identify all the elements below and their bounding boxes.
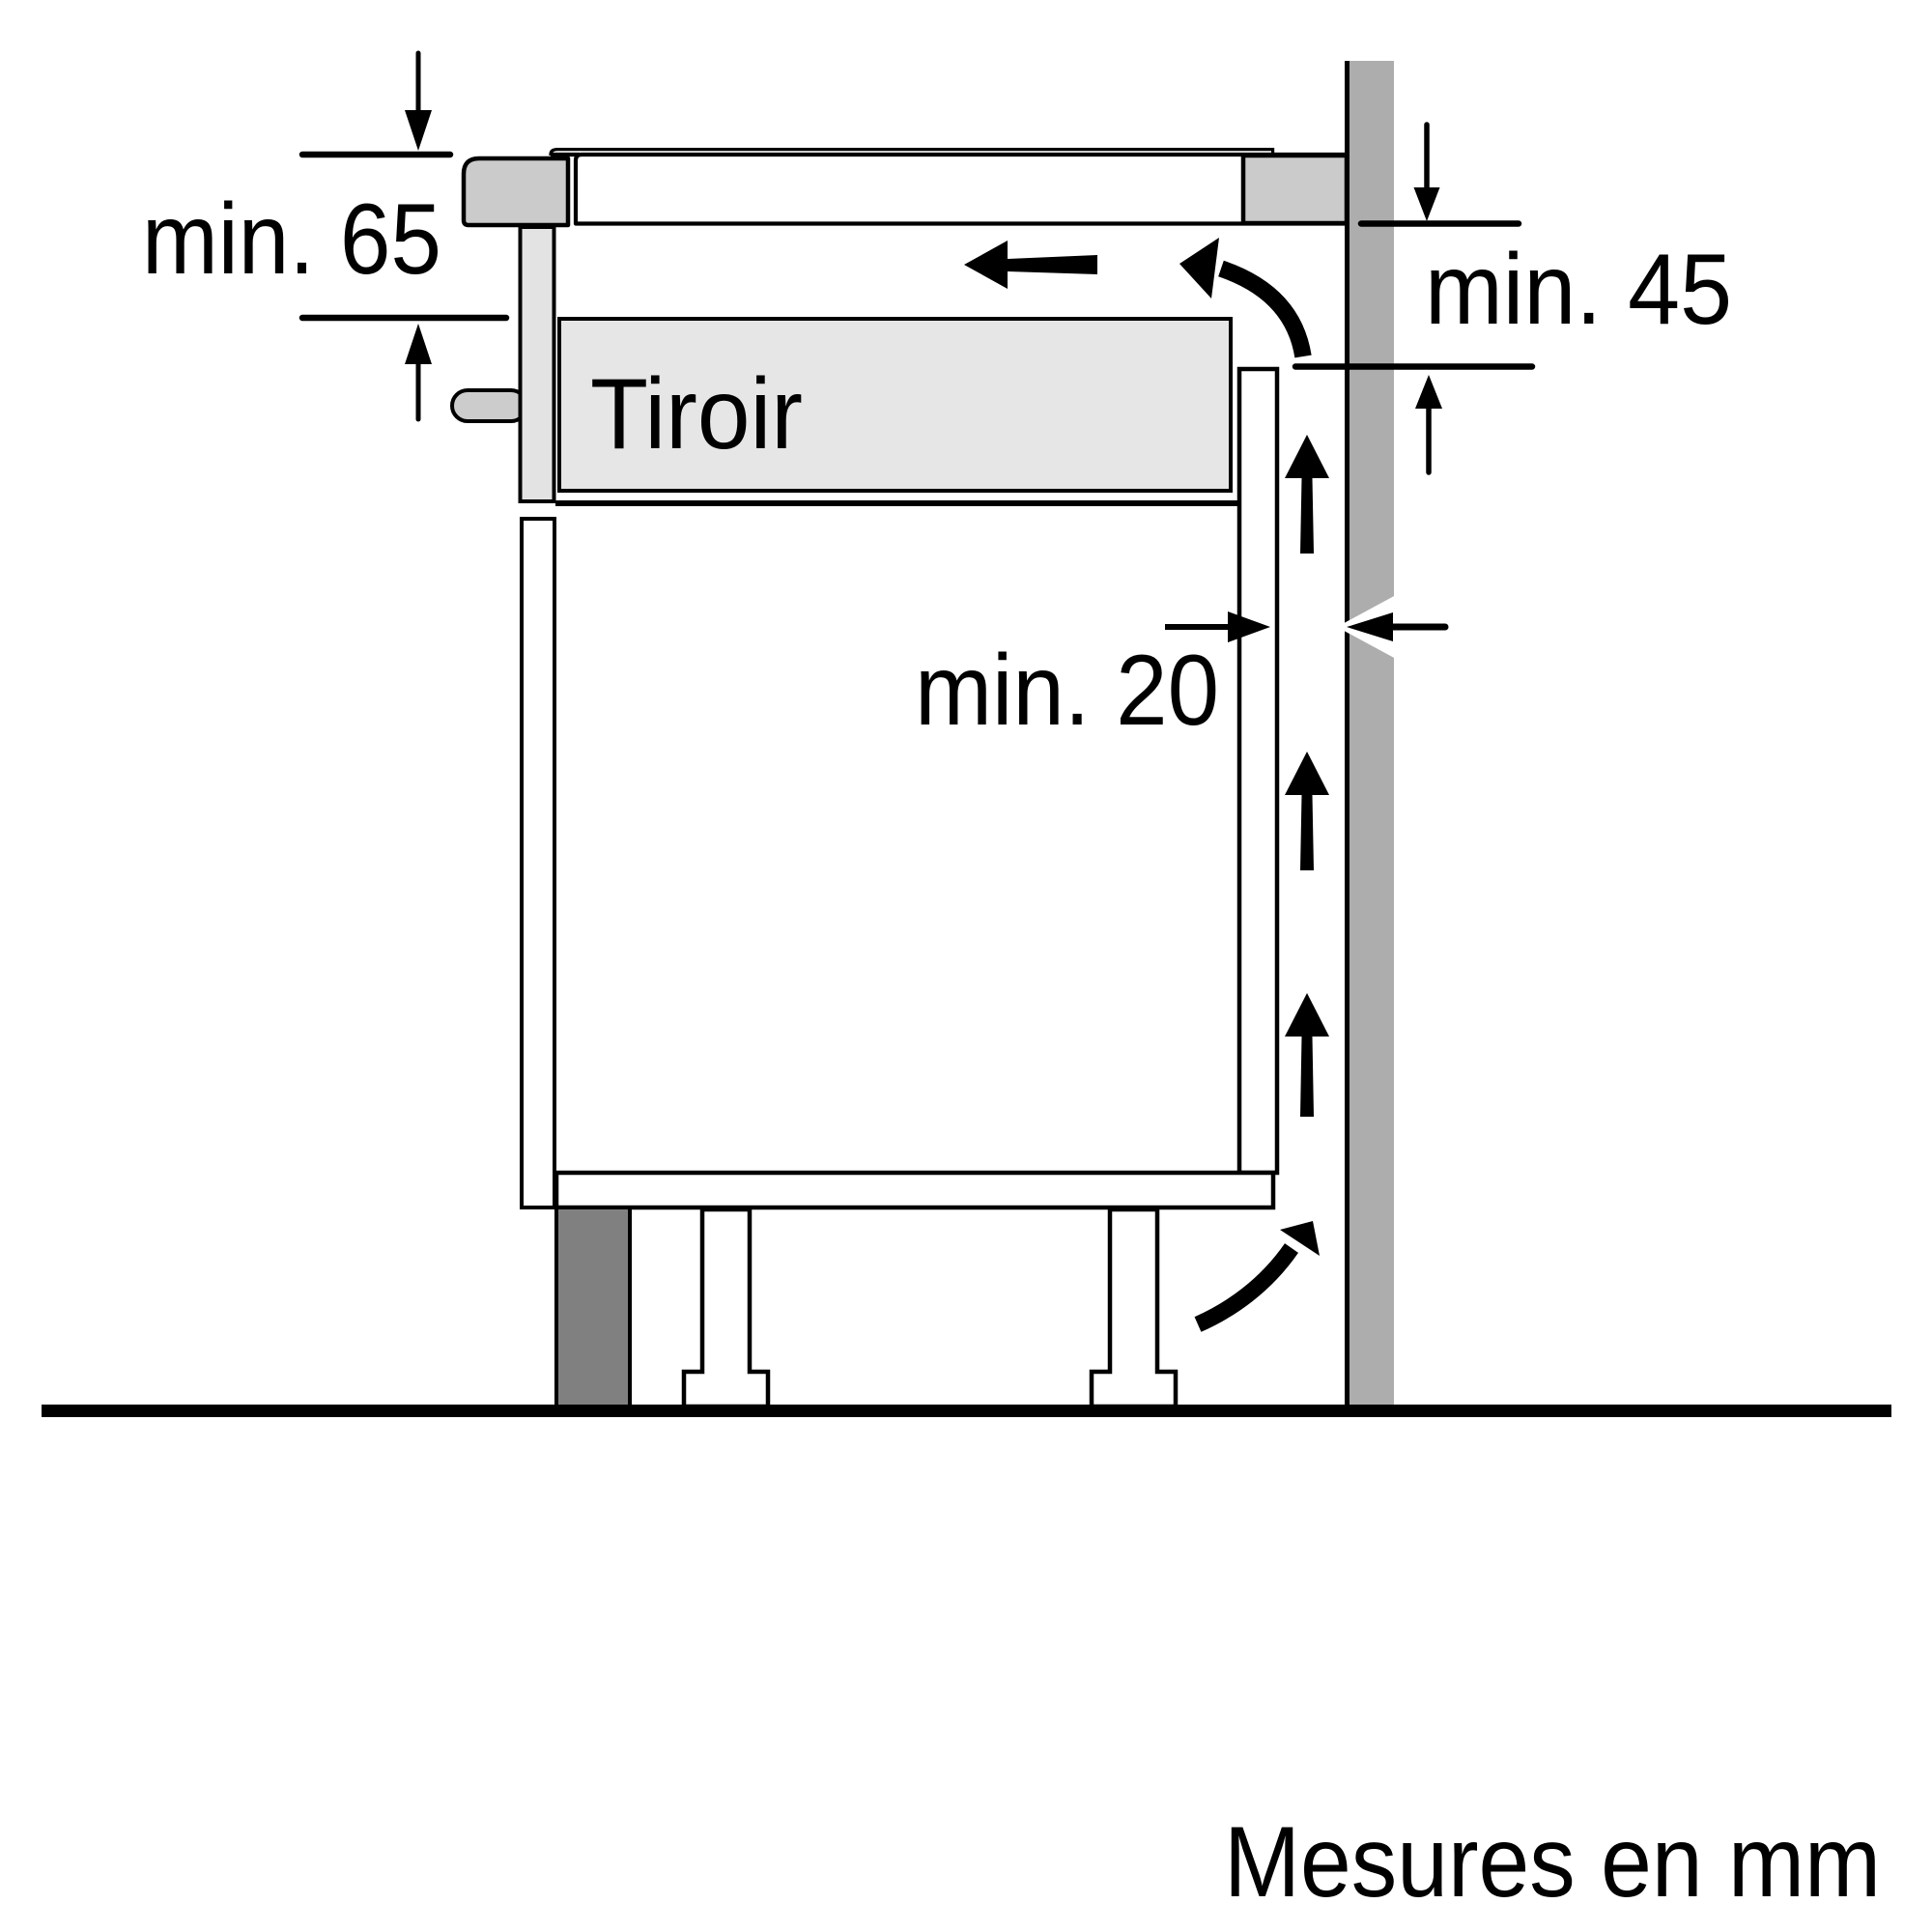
svg-text:min. 65: min. 65 — [142, 184, 441, 296]
svg-text:min. 45: min. 45 — [1425, 234, 1732, 346]
svg-text:min. 20: min. 20 — [915, 635, 1219, 747]
svg-text:Mesures en mm: Mesures en mm — [1224, 1806, 1881, 1918]
svg-text:Tiroir: Tiroir — [590, 358, 803, 470]
